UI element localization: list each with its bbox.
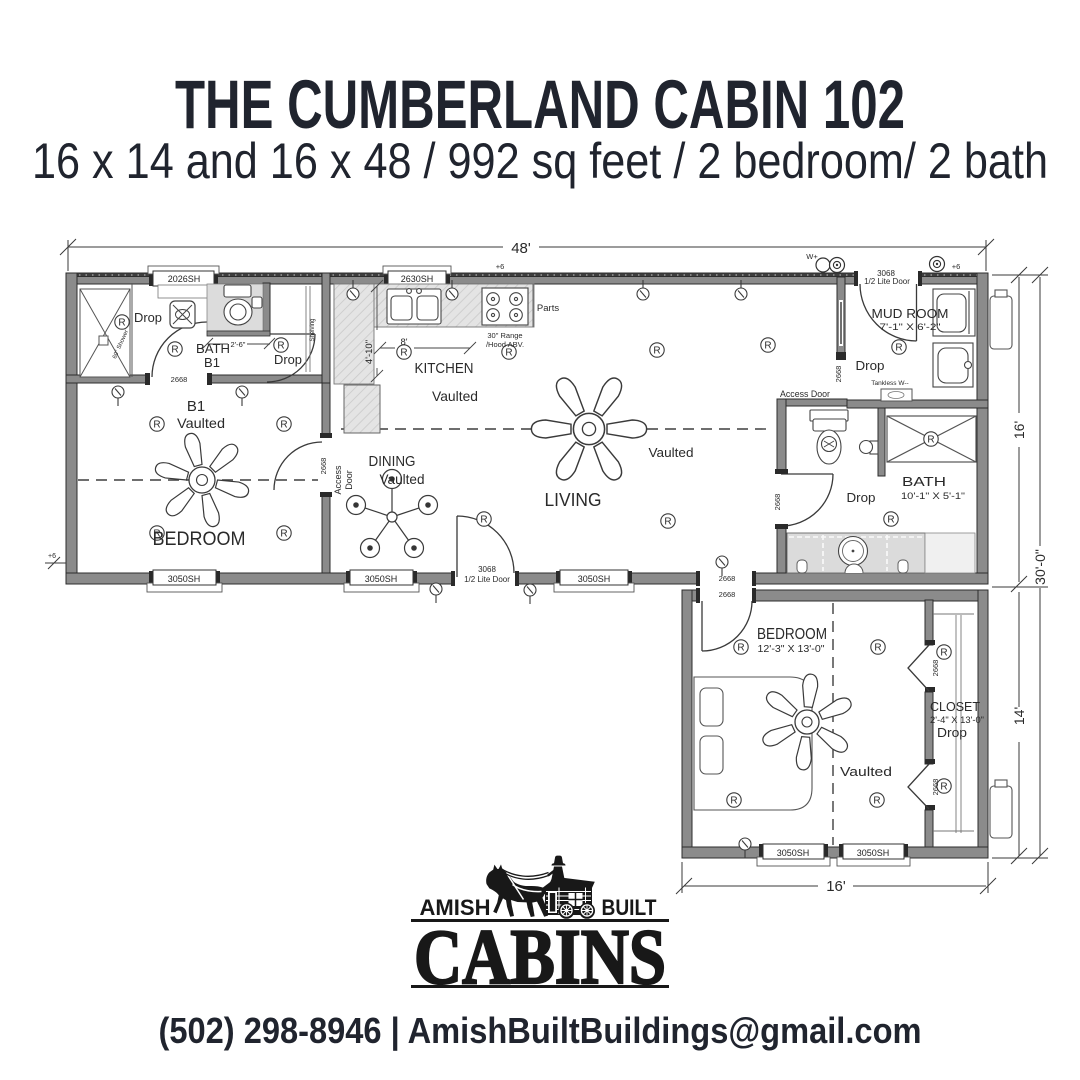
svg-text:Vaulted: Vaulted (177, 415, 225, 431)
svg-text:MUD ROOM: MUD ROOM (872, 306, 949, 321)
svg-text:Access: Access (333, 465, 343, 495)
svg-text:2668: 2668 (719, 574, 736, 583)
svg-text:12'-3" X 13'-0": 12'-3" X 13'-0" (758, 644, 825, 655)
svg-text:Drop: Drop (274, 352, 302, 367)
svg-text:BEDROOM: BEDROOM (757, 626, 827, 643)
svg-text:3068: 3068 (478, 565, 496, 574)
svg-text:2668: 2668 (719, 590, 736, 599)
svg-text:8': 8' (400, 337, 407, 348)
svg-text:KITCHEN: KITCHEN (415, 360, 474, 377)
svg-text:+6: +6 (48, 553, 56, 560)
svg-text:3050SH: 3050SH (168, 574, 201, 584)
svg-text:W+: W+ (806, 252, 818, 261)
svg-text:BATH: BATH (902, 474, 946, 489)
svg-text:2'-6": 2'-6" (231, 340, 246, 349)
svg-text:Vaulted: Vaulted (380, 471, 425, 487)
svg-text:1/2 Lite Door: 1/2 Lite Door (464, 575, 510, 584)
svg-text:Vaulted: Vaulted (432, 388, 478, 404)
svg-text:16': 16' (826, 878, 846, 895)
svg-text:THE CUMBERLAND CABIN 102: THE CUMBERLAND CABIN 102 (175, 66, 905, 143)
svg-text:Access Door: Access Door (780, 389, 830, 399)
svg-text:2668: 2668 (319, 458, 328, 475)
svg-text:+6: +6 (952, 262, 961, 271)
svg-text:2630SH: 2630SH (401, 274, 434, 284)
svg-text:BATH: BATH (196, 341, 230, 356)
svg-text:2668: 2668 (931, 779, 940, 796)
svg-text:2668: 2668 (834, 366, 843, 383)
svg-text:Vaulted: Vaulted (840, 764, 892, 779)
svg-text:Drop: Drop (937, 725, 967, 740)
svg-text:3050SH: 3050SH (365, 574, 398, 584)
svg-text:B1: B1 (204, 355, 220, 370)
svg-text:30'-0": 30'-0" (1032, 549, 1048, 585)
svg-text:30" Range: 30" Range (487, 331, 522, 340)
svg-text:LIVING: LIVING (545, 490, 602, 510)
svg-text:2668: 2668 (171, 375, 188, 384)
svg-text:7'-1" X 6'-2": 7'-1" X 6'-2" (880, 322, 941, 333)
svg-text:BEDROOM: BEDROOM (153, 529, 246, 550)
svg-text:14': 14' (1011, 707, 1027, 725)
svg-text:16': 16' (1011, 421, 1027, 439)
svg-text:1/2 Lite Door: 1/2 Lite Door (864, 277, 910, 286)
svg-text:3050SH: 3050SH (777, 848, 810, 858)
svg-text:Drop: Drop (134, 310, 162, 325)
svg-text:4'-10": 4'-10" (364, 340, 375, 364)
svg-text:Drop: Drop (847, 490, 876, 505)
svg-text:B1: B1 (187, 398, 205, 415)
svg-text:+6: +6 (496, 262, 505, 271)
svg-text:Drop: Drop (856, 358, 885, 373)
svg-text:10'-1" X 5'-1": 10'-1" X 5'-1" (901, 491, 965, 502)
svg-text:Parts: Parts (537, 303, 559, 314)
svg-text:CLOSET: CLOSET (930, 699, 980, 714)
svg-text:2026SH: 2026SH (168, 274, 201, 284)
svg-text:2668: 2668 (931, 660, 940, 677)
svg-text:Door: Door (344, 470, 354, 490)
svg-text:/Hood ABV.: /Hood ABV. (486, 340, 524, 349)
svg-text:16 x 14 and 16 x 48 / 992 sq f: 16 x 14 and 16 x 48 / 992 sq feet / 2 be… (32, 133, 1048, 189)
svg-text:3050SH: 3050SH (578, 574, 611, 584)
svg-text:(502) 298-8946 | AmishBuiltBui: (502) 298-8946 | AmishBuiltBuildings@gma… (159, 1010, 922, 1052)
svg-text:2668: 2668 (773, 494, 782, 511)
svg-text:48': 48' (511, 240, 531, 257)
svg-text:Tankless W--: Tankless W-- (871, 380, 908, 387)
svg-text:Vaulted: Vaulted (649, 445, 694, 460)
svg-text:3050SH: 3050SH (857, 848, 890, 858)
svg-text:Shelving: Shelving (310, 318, 316, 341)
svg-text:DINING: DINING (369, 453, 416, 470)
